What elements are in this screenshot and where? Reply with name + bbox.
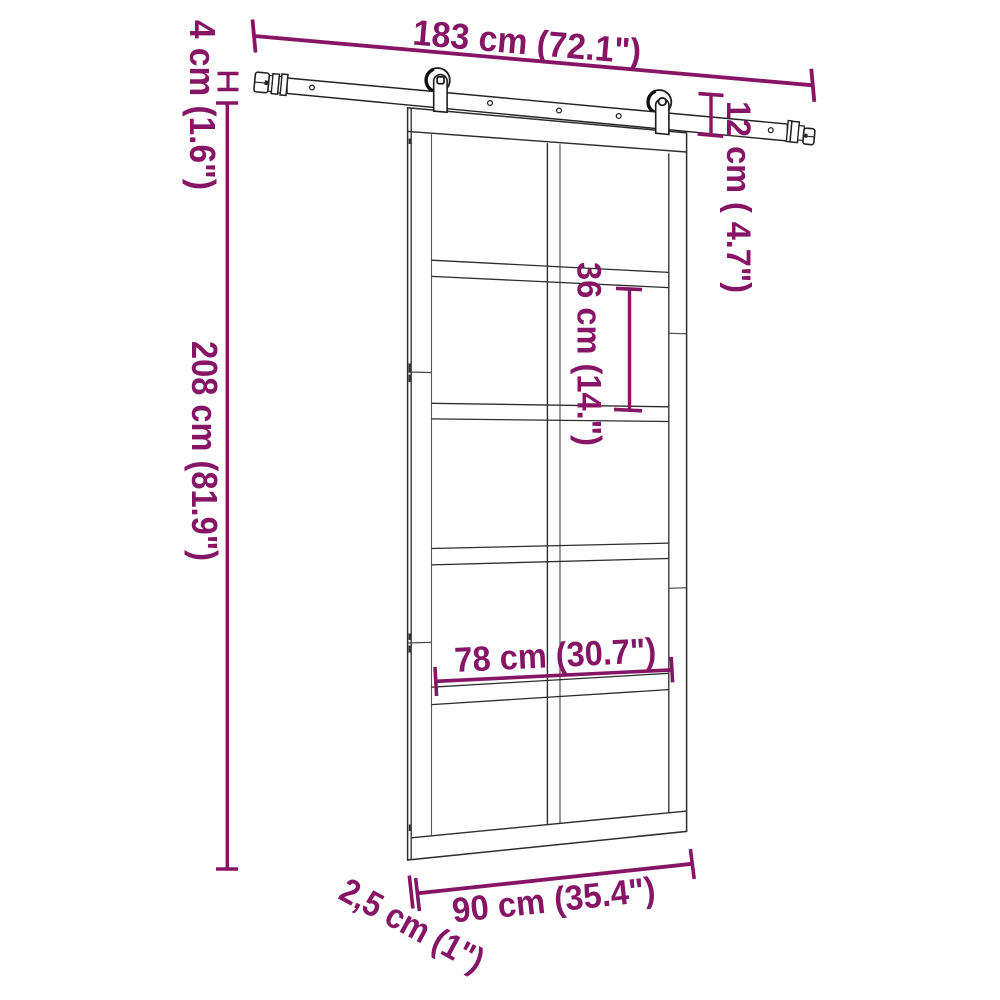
- svg-text:12 cm ( 4.7"): 12 cm ( 4.7"): [719, 101, 757, 293]
- svg-text:208 cm (81.9"): 208 cm (81.9"): [184, 341, 225, 561]
- svg-text:4 cm (1.6"): 4 cm (1.6"): [182, 20, 223, 190]
- svg-text:36 cm (14."): 36 cm (14."): [570, 262, 608, 446]
